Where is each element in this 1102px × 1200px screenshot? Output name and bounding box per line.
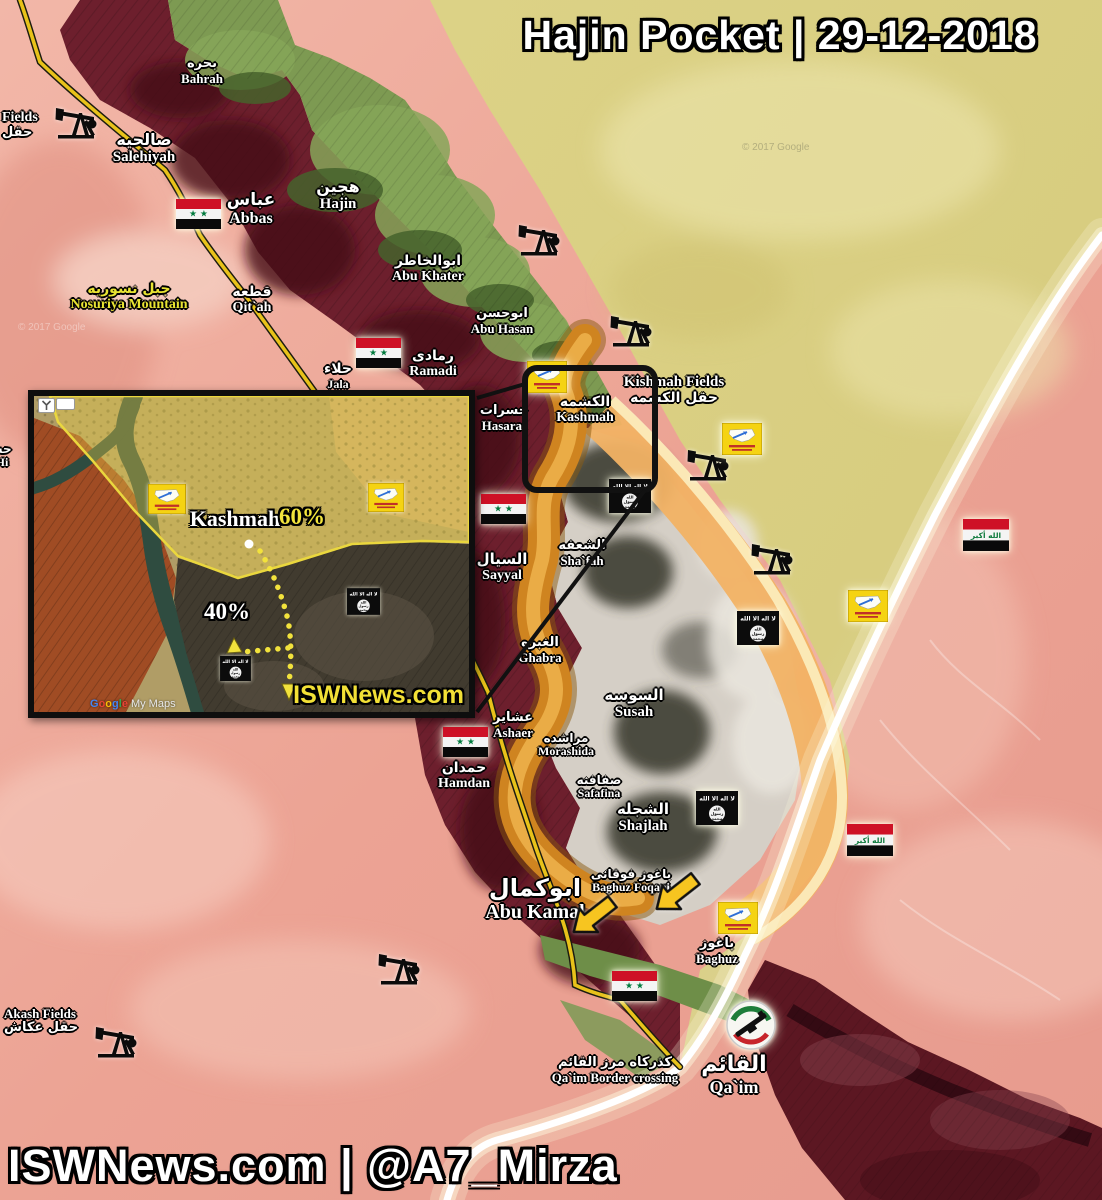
- svg-text:محمد: محمد: [625, 504, 636, 509]
- place-label-hamdan: حمدانHamdan: [438, 761, 490, 791]
- place-label-salehiyah: صالحيهSalehiyah: [113, 132, 176, 165]
- svg-text:★ ★: ★ ★: [625, 982, 644, 992]
- svg-text:لا اله الا الله: لا اله الا الله: [699, 796, 735, 803]
- oil-pumpjack-icon: [378, 948, 420, 991]
- place-label-morashida: مراشدهMorashida: [538, 732, 594, 758]
- place-label-akash-fields: Akash Fieldsحقل عكاش: [4, 1006, 78, 1034]
- place-label-shajlah: الشجلهShajlah: [617, 802, 669, 834]
- place-label-kishmah-fields: Kishmah Fieldsحقل الكشمه: [624, 374, 724, 405]
- sdf-flag-icon: [718, 902, 758, 939]
- inset-isis-percentage: 40%: [204, 599, 250, 625]
- inset-terrain: [34, 396, 469, 712]
- sdf-flag-icon: [722, 423, 762, 460]
- syria-flag-icon: ★ ★: [356, 338, 401, 373]
- inset-map: Kashmah 60% 40% ISWNews.com GoogleMy Map…: [28, 390, 475, 718]
- iraq-flag-icon: الله أكبر: [847, 824, 893, 861]
- place-label-abu-khater: ابوالخاطرAbu Khater: [392, 254, 464, 284]
- place-label-hasarat: حسراتHasarat: [480, 404, 528, 432]
- svg-text:محمد: محمد: [712, 816, 723, 821]
- place-label-ramadi: رمادىRamadi: [409, 349, 456, 379]
- isis-flag-icon: لا اله الا الله الله رسول محمد: [737, 611, 779, 650]
- oil-pumpjack-icon: [518, 219, 560, 262]
- place-label-qa-im: القائمQa`im: [701, 1054, 766, 1097]
- svg-text:لا اله الا الله: لا اله الا الله: [222, 660, 248, 665]
- place-label-fields: Fieldsحقل: [2, 110, 38, 139]
- inset-kashmah-label: Kashmah: [190, 506, 280, 532]
- inset-isis-flag-icon: لا اله الا الله الله رسول محمد: [347, 588, 380, 620]
- inset-watermark: ISWNews.com: [293, 681, 464, 710]
- place-label-jala: حلاءJala: [324, 362, 352, 390]
- sdf-flag-icon: [848, 590, 888, 627]
- place-label-kashmah: الكشمهKashmah: [556, 395, 614, 425]
- syria-flag-icon: ★ ★: [176, 199, 221, 234]
- map-canvas: © 2017 Google © 2017 Google بحرهBahrahصا…: [0, 0, 1102, 1200]
- place-label-safafina: صفافنهSafafina: [577, 774, 622, 800]
- svg-text:محمد: محمد: [359, 608, 368, 612]
- inset-isis-flag-icon: لا اله الا الله الله رسول محمد: [220, 656, 251, 686]
- svg-text:الله أكبر: الله أكبر: [854, 835, 885, 845]
- google-logo: Google: [90, 698, 128, 710]
- map-toggle-icon[interactable]: [56, 398, 75, 410]
- svg-text:لا اله الا الله: لا اله الا الله: [612, 484, 648, 491]
- syria-flag-icon: ★ ★: [443, 727, 488, 762]
- inset-sdf-percentage: 60%: [279, 504, 325, 530]
- iraq-flag-icon: الله أكبر: [963, 519, 1009, 556]
- svg-text:الله أكبر: الله أكبر: [970, 530, 1001, 540]
- place-label-bahrah: بحرهBahrah: [181, 57, 223, 85]
- place-label-abu-hasan: ابوحسنAbu Hasan: [471, 307, 534, 335]
- place-label-qa-im-border-crossing: كذركاه مرز القائمQa`im Border crossing: [552, 1056, 679, 1084]
- oil-pumpjack-icon: [751, 538, 793, 581]
- place-label-susah: السوسهSusah: [604, 688, 663, 720]
- place-label-baghuz: باغوزBaghuz: [696, 937, 738, 965]
- mymaps-label: My Maps: [131, 698, 176, 710]
- inset-sdf-flag-icon: [148, 484, 186, 519]
- place-label-hajin: هجينHajin: [316, 179, 360, 212]
- oil-pumpjack-icon: [55, 102, 97, 145]
- syria-flag-icon: ★ ★: [481, 494, 526, 529]
- svg-text:محمد: محمد: [753, 636, 764, 641]
- place-label-ghabra: الغبرهGhabra: [518, 636, 561, 664]
- oil-pumpjack-icon: [610, 310, 652, 353]
- place-label-qit-ah: قطعهQit`ah: [232, 285, 271, 315]
- place-label-sha-fah: الشعفهSha`fah: [558, 539, 605, 567]
- isis-flag-icon: لا اله الا الله الله رسول محمد: [696, 791, 738, 830]
- oil-pumpjack-icon: [95, 1021, 137, 1064]
- place-label-sayyal: السيالSayyal: [477, 552, 528, 583]
- svg-text:★ ★: ★ ★: [494, 505, 513, 515]
- pmu-logo-icon: [725, 999, 777, 1056]
- google-mymaps-attribution: GoogleMy Maps: [90, 698, 176, 710]
- svg-text:★ ★: ★ ★: [189, 210, 208, 220]
- page-title: Hajin Pocket | 29-12-2018: [522, 12, 1037, 59]
- directions-icon[interactable]: [38, 398, 55, 413]
- place-label-ashaer: عشايرAshaer: [493, 711, 533, 739]
- isis-flag-icon: لا اله الا الله الله رسول محمد: [609, 479, 651, 518]
- svg-text:لا اله الا الله: لا اله الا الله: [740, 616, 776, 623]
- syria-flag-icon: ★ ★: [612, 971, 657, 1006]
- sdf-flag-icon: [527, 361, 567, 398]
- svg-text:محمد: محمد: [232, 674, 240, 678]
- svg-text:لا اله الا الله: لا اله الا الله: [350, 592, 378, 598]
- svg-text:★ ★: ★ ★: [456, 738, 475, 748]
- watermark-credit: ISWNews.com | @A7_Mirza: [8, 1140, 618, 1192]
- place-label-h-hi: حسh Hi: [0, 443, 12, 469]
- svg-text:★ ★: ★ ★: [369, 349, 388, 359]
- inset-sdf-flag-icon: [368, 483, 404, 517]
- place-label-abbas: عباسAbbas: [227, 192, 275, 227]
- place-label-nosuriya-mountain: جبل نسوريهNosuriya Mountain: [70, 282, 187, 312]
